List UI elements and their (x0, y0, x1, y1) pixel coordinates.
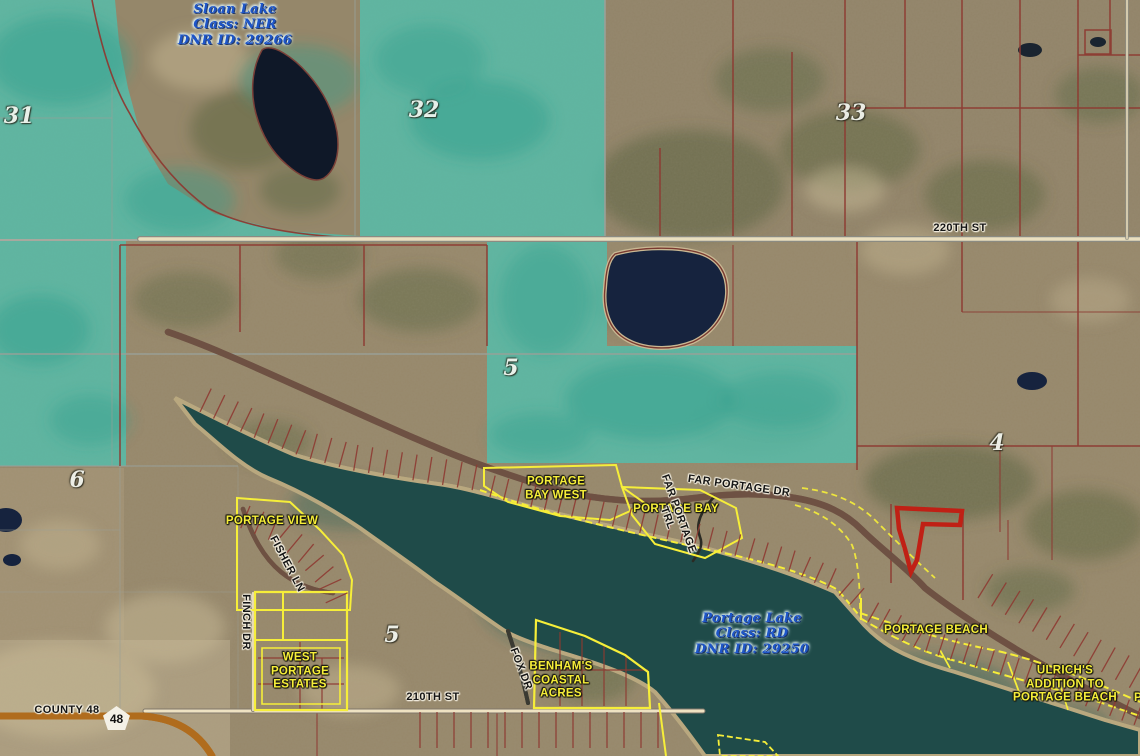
county-route-number: 48 (110, 712, 123, 726)
unnamed-lake-water (605, 248, 728, 348)
basemap (0, 0, 1140, 756)
gis-map-viewport[interactable]: PORTAGEBAY WESTPORTAGE BAYPORTAGE VIEWWE… (0, 0, 1140, 756)
